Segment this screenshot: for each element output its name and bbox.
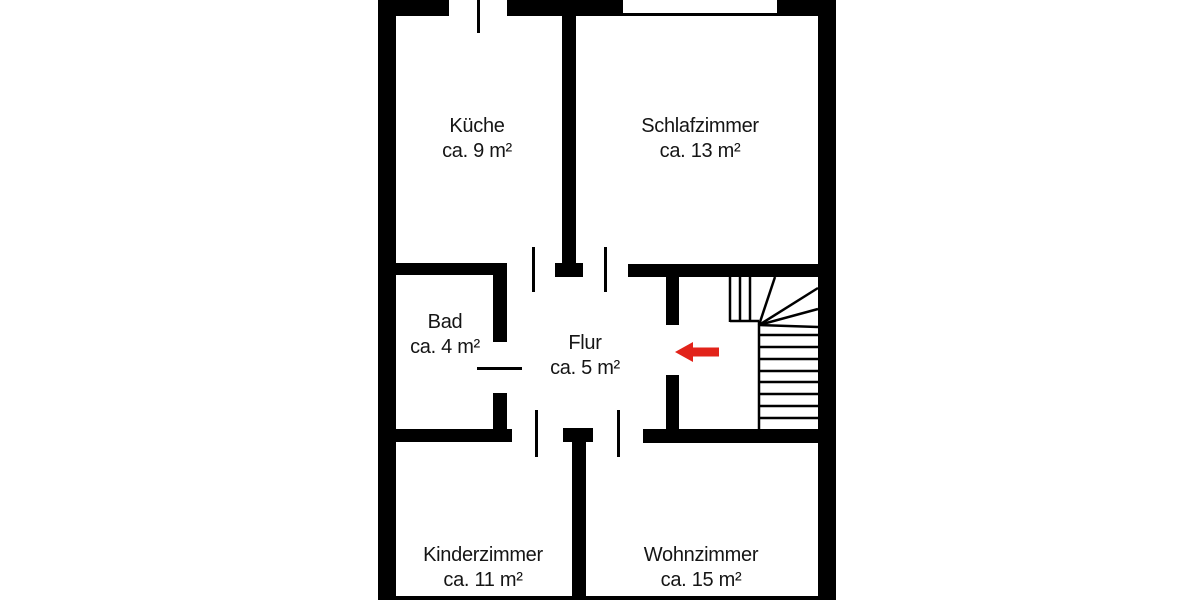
wall-outer-bottom xyxy=(378,596,836,600)
staircase-icon xyxy=(725,264,822,432)
room-label-kinderzimmer: Kinderzimmer ca. 11 m² xyxy=(363,543,603,593)
room-name: Schlafzimmer xyxy=(580,114,820,139)
wall-outer-top-right-segment xyxy=(777,0,836,16)
wall-outer-top-left-segment xyxy=(378,0,449,16)
wall-staircase-left-lower xyxy=(666,375,679,429)
room-name: Wohnzimmer xyxy=(581,543,821,568)
flur-kueche-door-icon xyxy=(532,247,535,292)
room-name: Kinderzimmer xyxy=(363,543,603,568)
wall-outer-left xyxy=(378,0,396,600)
wall-staircase-left-upper xyxy=(666,276,679,325)
flur-schlafzimmer-door-icon xyxy=(604,247,607,292)
room-label-schlafzimmer: Schlafzimmer ca. 13 m² xyxy=(580,114,820,164)
room-label-kueche: Küche ca. 9 m² xyxy=(357,114,597,164)
room-area: ca. 9 m² xyxy=(357,139,597,164)
room-area: ca. 13 m² xyxy=(580,139,820,164)
floor-plan: Küche ca. 9 m² Schlafzimmer ca. 13 m² Ba… xyxy=(0,0,1200,600)
room-label-wohnzimmer: Wohnzimmer ca. 15 m² xyxy=(581,543,821,593)
room-label-flur: Flur ca. 5 m² xyxy=(465,331,705,381)
room-area: ca. 15 m² xyxy=(581,568,821,593)
kueche-exterior-door-icon xyxy=(477,0,480,33)
wall-flur-top-stub xyxy=(555,263,583,277)
window-icon xyxy=(623,0,777,16)
flur-kinderzimmer-door-icon xyxy=(535,410,538,457)
room-name: Küche xyxy=(357,114,597,139)
wall-bad-top xyxy=(396,263,507,275)
wall-bad-right-lower xyxy=(493,393,507,441)
room-area: ca. 11 m² xyxy=(363,568,603,593)
room-area: ca. 5 m² xyxy=(465,356,705,381)
flur-wohnzimmer-door-icon xyxy=(617,410,620,457)
room-name: Flur xyxy=(465,331,705,356)
